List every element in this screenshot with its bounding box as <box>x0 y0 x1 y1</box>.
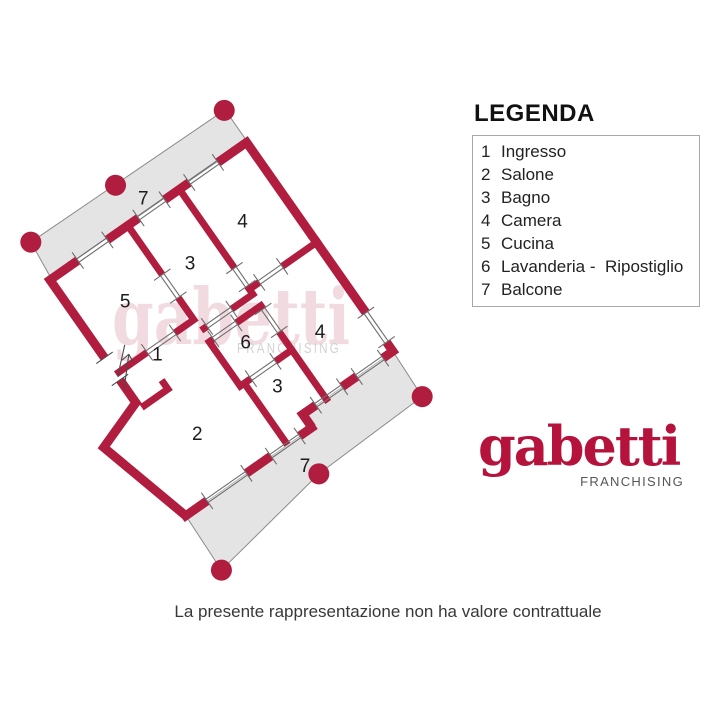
legend-box: 1 Ingresso 2 Salone 3 Bagno 4 Camera 5 C… <box>472 135 700 307</box>
legend-num: 4 <box>481 209 501 232</box>
legend-label: Ingresso <box>501 140 566 163</box>
legend-label: Balcone <box>501 278 562 301</box>
legend-num: 3 <box>481 186 501 209</box>
legend-num: 7 <box>481 278 501 301</box>
room-label-salone: 2 <box>192 424 203 445</box>
room-label-lavanderia: 6 <box>240 333 251 354</box>
room-label-balcone-nord: 7 <box>138 188 149 209</box>
legend-row-lavanderia: 6 Lavanderia - Ripostiglio <box>481 255 691 278</box>
legend-num: 6 <box>481 255 501 278</box>
legend-panel: LEGENDA 1 Ingresso 2 Salone 3 Bagno 4 Ca… <box>472 100 702 307</box>
gabetti-logo: gabetti FRANCHISING <box>478 419 684 489</box>
disclaimer-text: La presente rappresentazione non ha valo… <box>0 602 720 622</box>
floor-plan-drawing: gabetti FRANCHISING 7 5 3 4 1 6 4 3 2 7 <box>0 0 460 620</box>
legend-row-ingresso: 1 Ingresso <box>481 140 691 163</box>
legend-num: 1 <box>481 140 501 163</box>
room-label-bagno-1: 3 <box>185 253 196 274</box>
room-label-bagno-2: 3 <box>272 376 283 397</box>
room-label-cucina: 5 <box>120 291 131 312</box>
legend-row-bagno: 3 Bagno <box>481 186 691 209</box>
legend-row-cucina: 5 Cucina <box>481 232 691 255</box>
legend-label: Cucina <box>501 232 554 255</box>
floor-plan-page: gabetti FRANCHISING 7 5 3 4 1 6 4 3 2 7 <box>0 0 720 720</box>
legend-row-balcone: 7 Balcone <box>481 278 691 301</box>
legend-label: Lavanderia - Ripostiglio <box>501 255 683 278</box>
legend-num: 2 <box>481 163 501 186</box>
room-label-ingresso: 1 <box>152 344 163 365</box>
legend-num: 5 <box>481 232 501 255</box>
legend-row-camera: 4 Camera <box>481 209 691 232</box>
gabetti-logo-wordmark: gabetti <box>478 419 684 473</box>
legend-row-salone: 2 Salone <box>481 163 691 186</box>
legend-label: Camera <box>501 209 561 232</box>
legend-label: Salone <box>501 163 554 186</box>
room-label-camera-2: 4 <box>315 322 326 343</box>
legend-label: Bagno <box>501 186 550 209</box>
legend-title: LEGENDA <box>474 100 702 128</box>
room-label-camera-1: 4 <box>237 212 248 233</box>
